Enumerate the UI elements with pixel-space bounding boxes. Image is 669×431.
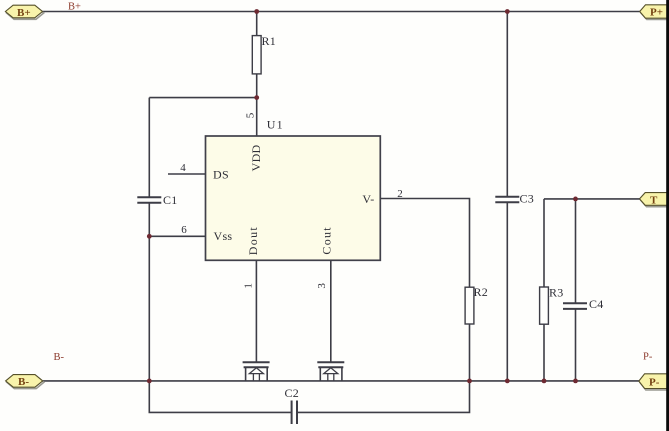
svg-text:T: T xyxy=(650,194,658,206)
svg-text:R3: R3 xyxy=(549,286,564,300)
svg-text:C3: C3 xyxy=(520,191,535,205)
svg-text:B+: B+ xyxy=(68,2,81,13)
svg-text:VDD: VDD xyxy=(249,144,263,171)
svg-text:DS: DS xyxy=(213,168,229,182)
svg-text:5: 5 xyxy=(244,112,256,118)
svg-text:B-: B- xyxy=(54,352,65,363)
svg-text:1: 1 xyxy=(243,283,255,289)
svg-text:P-: P- xyxy=(643,352,653,363)
svg-text:Cout: Cout xyxy=(320,226,334,255)
svg-text:6: 6 xyxy=(181,224,187,236)
svg-text:3: 3 xyxy=(316,283,328,289)
svg-text:P+: P+ xyxy=(650,7,663,19)
svg-text:U1: U1 xyxy=(267,118,284,132)
svg-text:P-: P- xyxy=(649,376,660,388)
svg-text:C2: C2 xyxy=(285,386,300,400)
svg-text:Dout: Dout xyxy=(246,226,260,255)
svg-text:R2: R2 xyxy=(474,285,489,299)
svg-text:B-: B- xyxy=(18,376,29,388)
svg-text:V-: V- xyxy=(362,192,374,206)
svg-text:C1: C1 xyxy=(163,193,178,207)
svg-text:B+: B+ xyxy=(17,7,31,19)
svg-text:Vss: Vss xyxy=(214,229,233,243)
svg-text:R1: R1 xyxy=(262,34,277,48)
svg-text:4: 4 xyxy=(180,162,186,174)
svg-text:C4: C4 xyxy=(589,297,604,311)
